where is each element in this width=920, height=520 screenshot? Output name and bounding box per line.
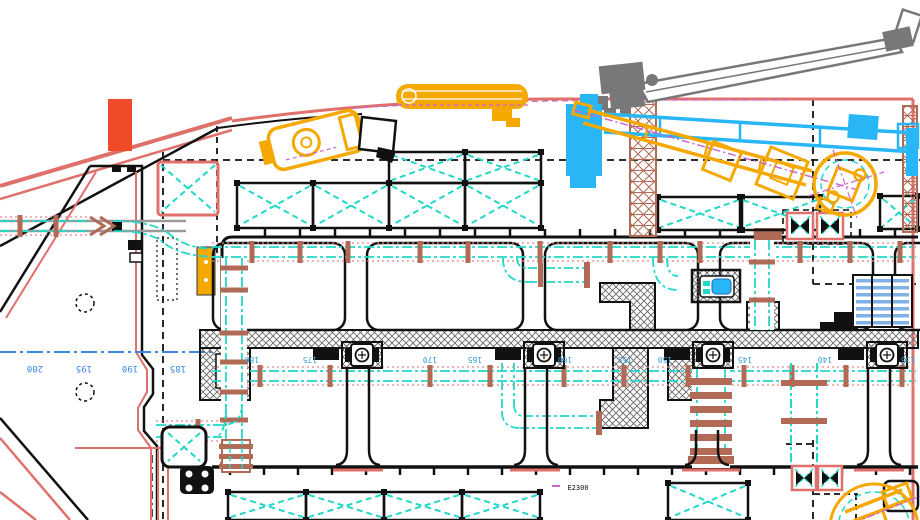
bow-pipe-horizontal-fl0 <box>18 215 23 237</box>
hatch-row-upper-top-panel1-dot3 <box>538 180 544 186</box>
brown-pipe-stub-bar2 <box>219 454 253 459</box>
hatch-row-bottom-left-panel3-frame <box>462 492 540 520</box>
pillar-4-l <box>857 368 868 465</box>
hatch-row-upper-top-panel1-dot0 <box>462 149 468 155</box>
hatch-row-upper-top-panel1-frame <box>465 152 541 183</box>
duct-valve-4-actuator <box>838 347 864 360</box>
hatch-row-upper-main <box>234 180 544 231</box>
manifold-valve-dn-2 <box>818 466 842 490</box>
pillar-2-l <box>514 368 525 465</box>
vertical-pipe-mid-bg <box>750 240 774 330</box>
hatch-right-3-dot0 <box>877 193 883 199</box>
brown-pipe-stub-bar1 <box>219 444 253 449</box>
manhole-dashed-circle-1 <box>76 294 94 312</box>
pillar-1 <box>336 368 380 465</box>
elbow-a-cap <box>584 262 590 288</box>
elbow-c-inner <box>514 404 524 416</box>
winch-frame <box>266 108 365 171</box>
vertical-pipe-left-fl4 <box>220 390 248 395</box>
main-pipe-run-upper-fl0 <box>250 241 255 263</box>
duct-label-8: 145 <box>738 355 753 364</box>
main-pipe-run-upper-fl10 <box>798 241 803 263</box>
hatch-row-upper-main-panel2 <box>386 180 468 231</box>
duct-label-6: 155 <box>618 355 633 364</box>
manifold-valve-up-2 <box>817 213 843 239</box>
blue-side-bar <box>906 128 918 176</box>
duct-valve-4-flange-l <box>870 348 875 362</box>
elbow-c-outer <box>502 412 520 428</box>
deck-bollard <box>180 466 214 494</box>
brown-pipe-stub-bar3 <box>219 464 253 469</box>
blue-crane-foot <box>570 176 596 188</box>
main-pipe-run-lower-fl1 <box>328 365 333 387</box>
manifold-flange-1 <box>781 380 827 386</box>
cad-drawing-screenshot: 2001951901851801751701651601551501451401… <box>0 0 920 520</box>
gray-boom-head <box>882 26 914 51</box>
main-pipe-run-upper-fl2 <box>346 241 351 263</box>
duct-label-10: 135 <box>901 355 916 364</box>
duct-label-3: 170 <box>423 355 438 364</box>
riser-flange-2 <box>690 392 732 399</box>
bow-lower-black <box>0 418 88 520</box>
hatch-row-upper-main-panel1-dot2 <box>310 225 316 231</box>
duct-valve-2-actuator <box>495 347 521 360</box>
duct-valve-3-flange-l <box>696 348 701 362</box>
hatch-row-upper-main-panel1 <box>310 180 392 231</box>
orange-cylinder-foot-2 <box>506 118 520 127</box>
heat-exchanger-grid-stripe6 <box>856 321 909 325</box>
hatch-bottom-right <box>665 480 751 520</box>
hatch-row-upper-top-panel0 <box>386 149 468 186</box>
small-fitting-3 <box>130 253 142 262</box>
bow-lower-salmon1 <box>0 438 70 520</box>
duct-label-5: 160 <box>558 355 573 364</box>
hatched-s-bend <box>600 283 655 330</box>
orange-jib-chord-bot <box>583 123 806 185</box>
hatch-row-bottom-left <box>225 489 543 520</box>
duct-valve-2-flange-l <box>527 348 532 362</box>
coaming-notch-2 <box>127 166 136 172</box>
main-pipe-run-upper-fl6 <box>608 241 613 263</box>
tank-bay-2 <box>367 243 523 330</box>
main-pipe-run-upper-fl11 <box>848 241 853 263</box>
gray-pivot-bit2 <box>620 106 630 114</box>
main-pipe-run-upper-fl5 <box>538 241 543 263</box>
pedestal-magenta-axis-1 <box>808 172 884 196</box>
main-pipe-run-upper-fl1 <box>298 241 303 263</box>
main-pipe-run-upper-fl8 <box>698 241 703 263</box>
duct-label-4: 165 <box>468 355 483 364</box>
deck-bollard-pin1 <box>202 471 209 478</box>
main-pipe-run-upper-fl12 <box>898 241 903 263</box>
hatch-row-bottom-left-panel2 <box>381 489 465 520</box>
hatch-right-2-dot2 <box>737 227 743 233</box>
orange-winch-group <box>257 108 366 173</box>
manifold-valve-up-1 <box>787 213 813 239</box>
heat-exchanger-grid-stripe0 <box>856 279 909 283</box>
pillar-1-r <box>369 368 380 465</box>
duct-valve-1-flange-r <box>374 348 379 362</box>
mast-red-fill <box>108 99 132 151</box>
hatch-right-1 <box>655 194 745 233</box>
deck-bollard-pin0 <box>186 471 193 478</box>
heat-exchanger-grid <box>853 275 912 327</box>
duct-valve-1-flange-l <box>345 348 350 362</box>
elbow-c-flange <box>596 411 602 435</box>
vertical-pipe-left-fl3 <box>220 360 248 365</box>
hatch-row-bottom-left-panel2-frame <box>384 492 462 520</box>
orange-unit-bolt-2 <box>204 278 208 282</box>
hatch-row-upper-main-panel0-dot0 <box>234 180 240 186</box>
drawing-layer-root: 2001951901851801751701651601551501451401… <box>0 10 920 520</box>
coaming-notch-1 <box>112 166 121 172</box>
duct-label-2: 175 <box>303 355 318 364</box>
main-pipe-run-lower-fl7 <box>742 365 747 387</box>
forecastle-outline-salmon <box>136 172 151 520</box>
manifold-flange-2 <box>781 418 827 424</box>
hatch-row-bottom-left-panel1-frame <box>306 492 384 520</box>
duct-label-1: 180 <box>245 355 260 364</box>
vertical-pipe-left-fl2 <box>220 331 248 336</box>
vertical-pipe-left-fl1 <box>220 288 248 293</box>
heat-exchanger-grid-stripe4 <box>856 307 909 311</box>
hatch-row-upper-main-panel0 <box>234 180 316 231</box>
pillar-4-r <box>890 368 901 465</box>
vertical-pipe-left <box>220 258 248 468</box>
bottom-crane-bolt-circle <box>838 492 910 520</box>
frame-label-4: 185 <box>170 363 186 373</box>
pump-unit-box-nub2 <box>703 289 710 294</box>
heat-exchanger-grid-stripe3 <box>856 300 909 304</box>
pillar-4 <box>857 368 901 465</box>
heat-exchanger-grid-stripe1 <box>856 286 909 290</box>
hatch-row-upper-main-panel0-dot2 <box>234 225 240 231</box>
crane-mast-lattice <box>630 98 656 236</box>
pillar-1-l <box>336 368 347 465</box>
heat-exchanger-grid-stripe5 <box>856 314 909 318</box>
frame-label-3: 190 <box>122 363 138 373</box>
hatch-bottom-right-dot1 <box>745 480 751 486</box>
small-fitting-1 <box>128 240 142 250</box>
duct-label-7: 150 <box>658 355 673 364</box>
hatch-row-bottom-left-panel0-dot0 <box>225 489 231 495</box>
crane-mast-lattice-fill <box>630 98 656 236</box>
hatch-bottom-right-dot0 <box>665 480 671 486</box>
hatch-row-upper-top <box>386 149 544 186</box>
vertical-pipe-left-fl0 <box>220 266 248 271</box>
hatch-row-bottom-left-panel3-dot0 <box>459 489 465 495</box>
vertical-pipe-mid-fl1 <box>749 298 775 303</box>
hatch-right-3-dot2 <box>877 226 883 232</box>
bow-pipe-horizontal-fl1 <box>54 215 59 237</box>
main-pipe-run-upper-fl4 <box>466 241 471 263</box>
hatch-row-bottom-left-panel0 <box>225 489 309 520</box>
hatch-row-upper-main-panel3 <box>462 180 544 231</box>
main-pipe-run-upper-fl3 <box>418 241 423 263</box>
main-pipe-run-upper-fl7 <box>658 241 663 263</box>
hatch-row-upper-main-panel2-dot2 <box>386 225 392 231</box>
hatch-right-2-dot0 <box>737 194 743 200</box>
main-pipe-run-lower-fl2 <box>428 365 433 387</box>
duct-label-9: 140 <box>818 355 833 364</box>
elbow-a-flange <box>538 263 543 287</box>
main-pipe-run-lower-fl6 <box>686 365 691 387</box>
gray-boom-chord <box>646 46 897 92</box>
deck-bollard-base <box>180 466 214 494</box>
deck-bollard-pin3 <box>202 485 209 492</box>
main-pipe-run-lower-fl3 <box>488 365 493 387</box>
elbow-b-outer <box>653 258 678 290</box>
riser-flange-4 <box>690 420 732 427</box>
hatch-row-upper-main-panel1-dot0 <box>310 180 316 186</box>
note-label: E2300 <box>567 484 588 492</box>
duct-valve-3-flange-r <box>725 348 730 362</box>
dotted-equipment-box <box>157 238 177 300</box>
main-pipe-run-lower-fl5 <box>622 365 627 387</box>
hatch-row-bottom-left-panel1-dot0 <box>303 489 309 495</box>
black-step-block-2 <box>820 322 836 331</box>
hatch-row-bottom-left-panel2-dot0 <box>381 489 387 495</box>
vertical-pipe-mid <box>749 240 775 330</box>
hatch-row-upper-top-panel0-dot2 <box>386 180 392 186</box>
pump-unit-box <box>692 270 740 302</box>
hatch-row-bottom-left-panel3-dot1 <box>537 489 543 495</box>
pump-unit-box-body <box>712 279 731 294</box>
cad-drawing-canvas: 2001951901851801751701651601551501451401… <box>0 0 920 520</box>
pump-unit-box-nub1 <box>703 281 710 286</box>
main-pipe-run-lower-fl9 <box>844 365 849 387</box>
forecastle-outline-black <box>90 166 157 520</box>
manhole-dashed-circle-2 <box>76 383 94 401</box>
deck-bollard-pin2 <box>186 485 193 492</box>
hatch-row-upper-main-panel3-dot2 <box>462 225 468 231</box>
hatch-row-bottom-left-panel1 <box>303 489 387 520</box>
blue-boom-knuckle <box>847 114 879 140</box>
riser-flange-1 <box>690 378 732 385</box>
manifold-valve-dn-1 <box>792 466 816 490</box>
hatch-row-upper-top-panel1-dot1 <box>538 149 544 155</box>
bow-pipe-horizontal <box>0 215 88 237</box>
bottom-crane-jib-1 <box>845 490 902 512</box>
gray-pivot-pin <box>646 74 658 86</box>
hatch-row-upper-main-panel3-dot3 <box>538 225 544 231</box>
hatch-row-upper-top-panel1-dot2 <box>462 180 468 186</box>
hatch-salmon-left <box>158 162 218 215</box>
vertical-pipe-mid-fl0 <box>749 260 775 265</box>
orange-unit-bolt-1 <box>204 260 208 264</box>
hatch-row-bottom-left-panel3 <box>459 489 543 520</box>
frame-label-1: 200 <box>27 363 43 373</box>
riser-flange-3 <box>690 406 732 413</box>
hatch-row-upper-top-panel1 <box>462 149 544 186</box>
frame-label-2: 195 <box>76 363 92 373</box>
heat-exchanger-grid-stripe2 <box>856 293 909 297</box>
hatch-row-upper-top-panel0-frame <box>389 152 465 183</box>
hatch-row-bottom-left-panel0-frame <box>228 492 306 520</box>
deck-box-trapezoid <box>359 117 396 153</box>
bow-lower-salmon2 <box>0 492 36 520</box>
main-pipe-run-lower-fl0 <box>258 365 263 387</box>
